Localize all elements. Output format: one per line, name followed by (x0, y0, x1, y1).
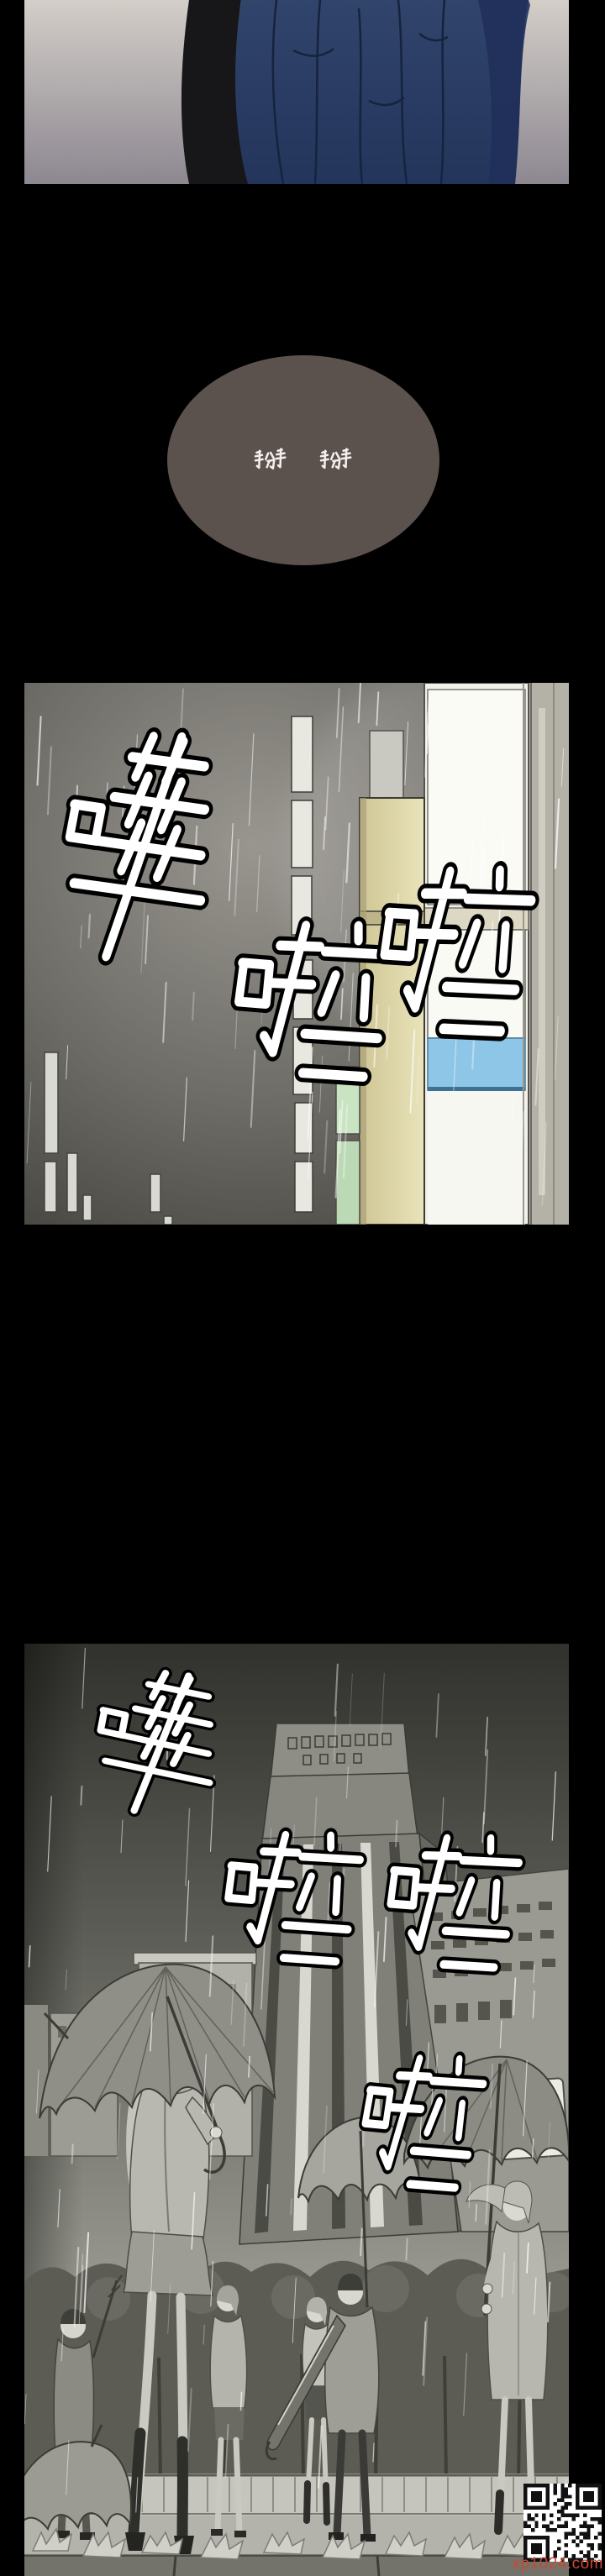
panel-rain-buildings (24, 683, 569, 1225)
building-white (424, 683, 529, 1225)
comic-page: xp1024.com (0, 0, 605, 2576)
green-windows (336, 1067, 360, 1225)
bubble-text (232, 430, 375, 491)
rainy-street-art (24, 1644, 569, 2576)
watermark-text: xp1024.com (454, 2555, 603, 2573)
rain-buildings-art (24, 683, 569, 1225)
panel-rainy-street (24, 1644, 569, 2576)
hooded-figure-art (24, 0, 569, 184)
qr-code (523, 2484, 602, 2562)
panel-hooded-figure (24, 0, 569, 184)
speech-bubble (167, 355, 439, 565)
